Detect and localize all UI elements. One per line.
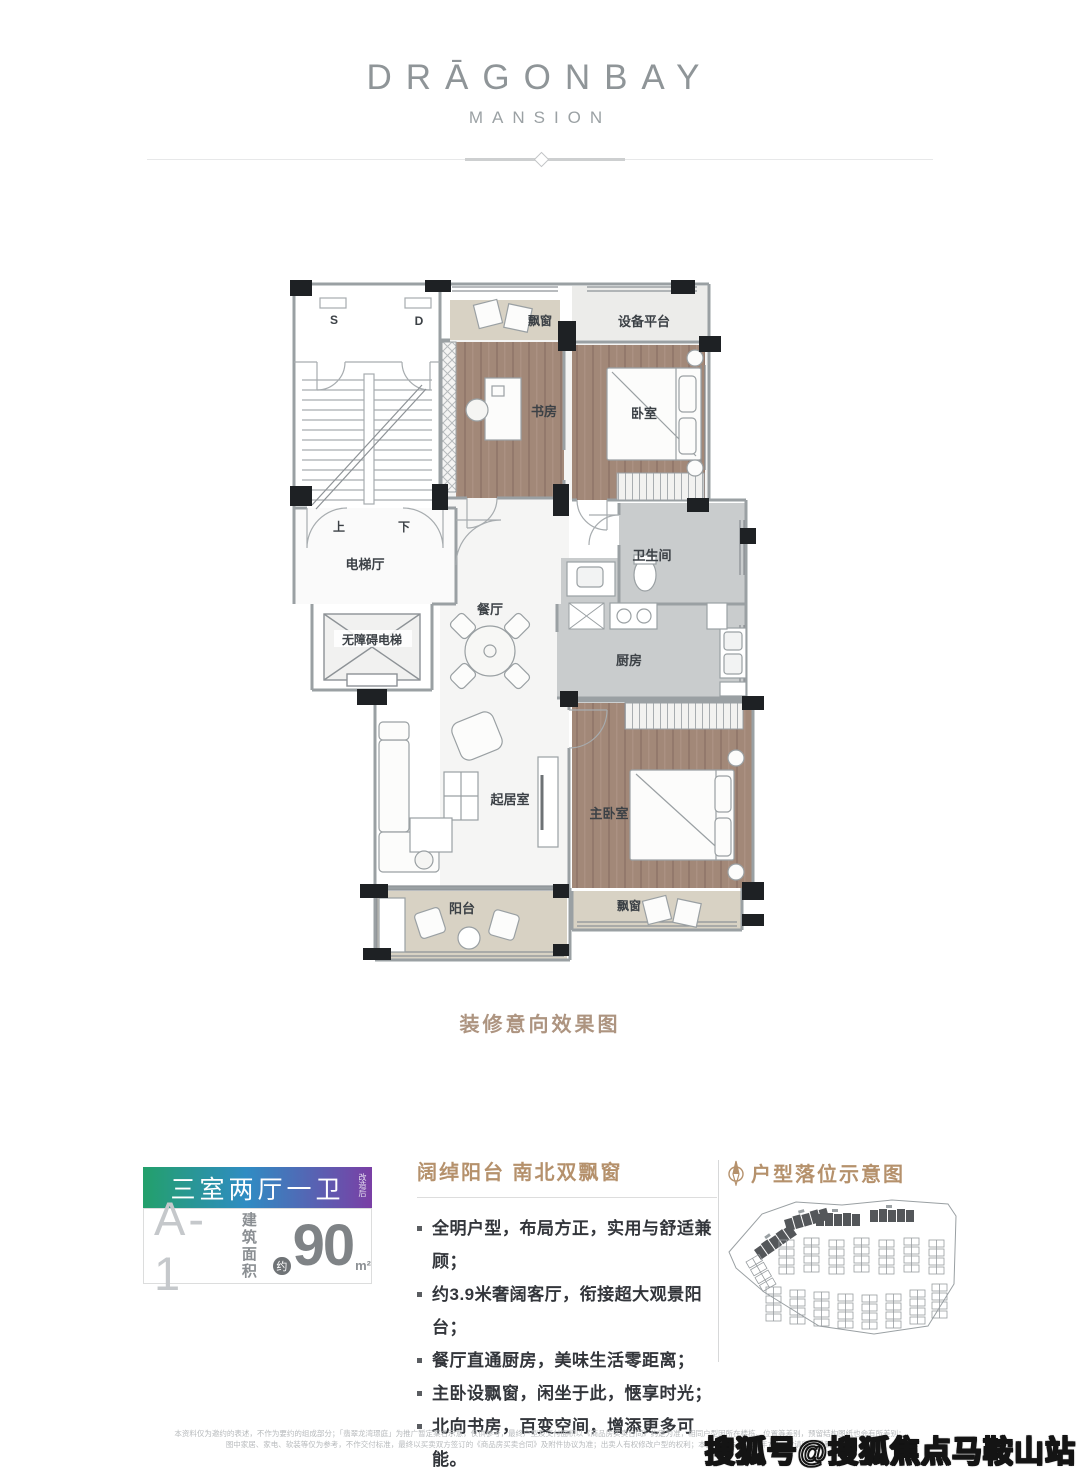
label-dining: 餐厅 [476,602,503,617]
bullet-icon [417,1391,422,1396]
brand-name: DRĀGONBAY [0,58,1080,98]
diamond-ornament-icon [534,152,550,168]
label-accessible-elevator: 无障碍电梯 [341,632,402,647]
label-up: 上 [333,519,345,534]
floorplan-svg: S D 上 下 电梯厅 无障碍电梯 餐厅 飘窗 设备平台 书房 卧室 卫生间 厨… [272,270,777,995]
feature-item: 主卧设飘窗，闲坐于此，惬享时光； [417,1377,717,1410]
page: DRĀGONBAY MANSION [0,0,1080,1477]
brand-logo: DRĀGONBAY MANSION [0,58,1080,128]
plan-caption: 装修意向效果图 [0,1008,1080,1037]
label-down: 下 [398,520,410,534]
feature-item: 餐厅直通厨房，美味生活零距离； [417,1344,717,1377]
vertical-divider [718,1160,719,1362]
bullet-icon [417,1226,422,1231]
unit-number: A-1 [154,1191,234,1301]
floorplan: S D 上 下 电梯厅 无障碍电梯 餐厅 飘窗 设备平台 书房 卧室 卫生间 厨… [272,270,777,995]
approx-badge: 约 [273,1257,291,1275]
label-bathroom: 卫生间 [632,548,671,563]
area-value: 90 [293,1217,354,1275]
feature-item: 约3.9米奢阔客厅，衔接超大观景阳台； [417,1278,717,1344]
label-bay-window-bottom: 飘窗 [617,898,641,913]
label-kitchen: 厨房 [616,653,642,668]
siteplan-header: 户型落位示意图 [726,1158,905,1187]
siteplan-title: 户型落位示意图 [751,1158,905,1187]
label-master-bedroom: 主卧室 [589,806,628,821]
label-d: D [415,314,424,328]
bullet-icon [417,1358,422,1363]
accessible-elevator-shaft [324,614,420,686]
label-bay-window-top: 飘窗 [528,313,552,328]
watermark: 搜狐号@搜狐焦点马鞍山站 [705,1427,1076,1471]
stair-core [294,298,440,509]
feature-item: 全明户型，布局方正，实用与舒适兼顾； [417,1212,717,1278]
bullet-icon [417,1292,422,1297]
label-living: 起居室 [489,792,529,807]
label-equipment-platform: 设备平台 [618,314,670,329]
label-study: 书房 [531,404,557,419]
area-unit: m² [355,1258,371,1273]
features-heading: 阔绰阳台 南北双飘窗 [417,1156,717,1198]
compass-icon [726,1160,746,1186]
label-elevator-hall: 电梯厅 [345,557,384,572]
unit-area-card: A-1 建筑 面积 约 90 m² [143,1208,372,1284]
label-s: S [330,313,338,327]
unit-layout-note: 改造后 [358,1173,367,1197]
area-label: 建筑 面积 [242,1212,271,1280]
brand-subtitle: MANSION [0,108,1080,128]
label-bedroom: 卧室 [631,406,657,421]
siteplan-map [724,1192,959,1344]
label-balcony: 阳台 [449,901,475,916]
